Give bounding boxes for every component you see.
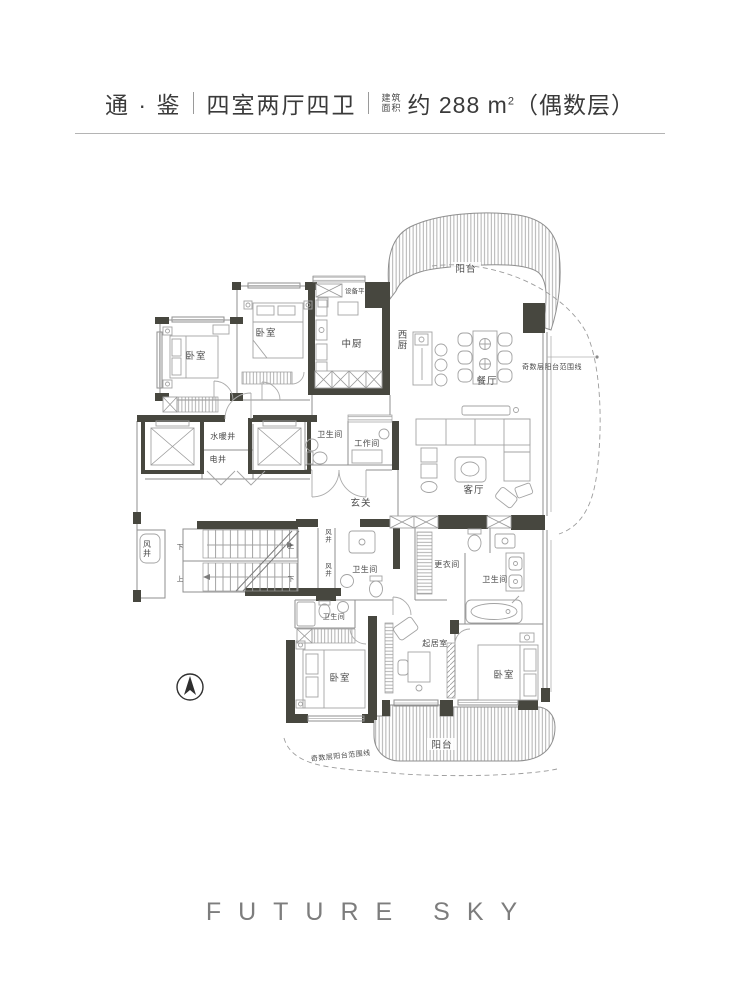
label-balcony-bottom: 阳台: [431, 739, 452, 751]
label-electric-shaft: 电井: [210, 454, 227, 464]
floorplan-drawing: 阳台 设备平台 卧室 卧室 中厨 西厨 餐厅 奇数层阳台范围线 水暖井 电井 卫…: [0, 0, 740, 986]
elevator-1: [143, 420, 202, 472]
label-bath-top: 卫生间: [317, 429, 343, 439]
label-stair-down-2: 下: [288, 575, 295, 583]
compass-north-icon: [177, 674, 203, 700]
elevator-2: [250, 420, 309, 472]
label-odd-floor-line-right: 奇数层阳台范围线: [522, 362, 582, 371]
brand-logo: FUTURE SKY: [206, 898, 534, 926]
bed-top-mid: [244, 301, 312, 358]
label-balcony-top: 阳台: [455, 263, 476, 275]
label-bedroom-bottom-right: 卧室: [493, 669, 514, 681]
label-odd-floor-line-bottom: 奇数层阳台范围线: [310, 748, 371, 763]
label-wind-shaft-mid-1: 风井: [324, 528, 332, 544]
label-kitchen-western: 西厨: [396, 330, 408, 351]
doors: [214, 372, 470, 644]
floorplan-page: 通 · 鉴 四室两厅四卫 建筑 面积 约 288 m2（偶数层）: [0, 0, 740, 986]
label-bedroom-top-mid: 卧室: [255, 327, 276, 339]
label-dining: 餐厅: [476, 375, 497, 387]
balcony-bottom: [374, 705, 555, 761]
label-sitting-room: 起居室: [422, 638, 448, 648]
bath-mid-fixtures: [341, 531, 383, 597]
label-workroom: 工作间: [354, 438, 380, 448]
label-wind-shaft-mid-2: 风井: [324, 562, 332, 578]
label-bedroom-bottom-left: 卧室: [329, 672, 350, 684]
label-foyer: 玄关: [350, 497, 371, 509]
staircase: [183, 530, 299, 591]
elevator-shafts: [143, 420, 309, 485]
label-bath-right: 卫生间: [482, 574, 508, 584]
label-kitchen-chinese: 中厨: [341, 338, 362, 350]
label-water-heating-shaft: 水暖井: [210, 431, 236, 441]
label-wind-shaft-left: 风井: [143, 540, 152, 558]
bed-bottom-right: [478, 633, 538, 700]
label-bath-lower: 卫生间: [323, 612, 346, 621]
label-living: 客厅: [463, 484, 484, 496]
label-bath-mid: 卫生间: [352, 564, 378, 574]
footer: FUTURE SKY: [0, 898, 740, 927]
island-counter: [413, 332, 447, 386]
label-equipment-platform: 设备平台: [345, 286, 371, 295]
label-stair-down-1: 下: [177, 543, 184, 551]
label-stair-up-1: 上: [288, 541, 295, 550]
label-stair-up-2: 上: [177, 574, 184, 583]
label-bedroom-top-left: 卧室: [185, 350, 206, 362]
sitting-room-furniture: [392, 616, 430, 691]
label-dressing-room: 更衣间: [434, 559, 460, 569]
